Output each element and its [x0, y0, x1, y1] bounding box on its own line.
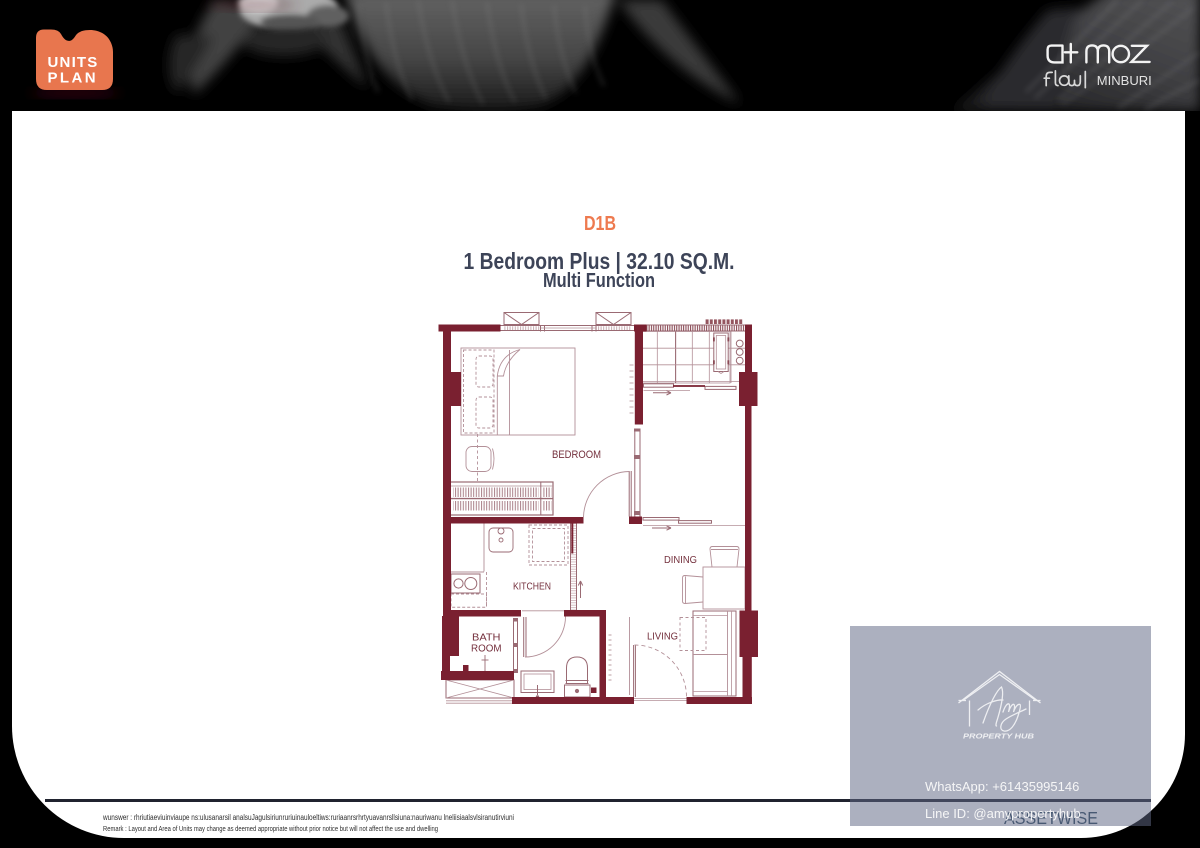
- svg-text:wunswer : rhriutiaeviuinviaupe: wunswer : rhriutiaeviuinviaupe ns:ulusan…: [102, 813, 514, 822]
- svg-text:WhatsApp: +61435995146: WhatsApp: +61435995146: [925, 779, 1079, 794]
- svg-text:KITCHEN: KITCHEN: [513, 582, 551, 593]
- svg-text:BEDROOM: BEDROOM: [552, 449, 601, 461]
- svg-text:PROPERTY HUB: PROPERTY HUB: [963, 734, 1034, 741]
- svg-text:DINING: DINING: [664, 555, 697, 566]
- svg-text:LIVING: LIVING: [647, 632, 678, 643]
- svg-text:BATH: BATH: [472, 633, 501, 644]
- svg-text:Line ID: @amypropertyhub: Line ID: @amypropertyhub: [925, 806, 1081, 821]
- svg-text:Remark : Layout and Area of Un: Remark : Layout and Area of Units may ch…: [103, 826, 438, 833]
- svg-text:ROOM: ROOM: [471, 644, 502, 655]
